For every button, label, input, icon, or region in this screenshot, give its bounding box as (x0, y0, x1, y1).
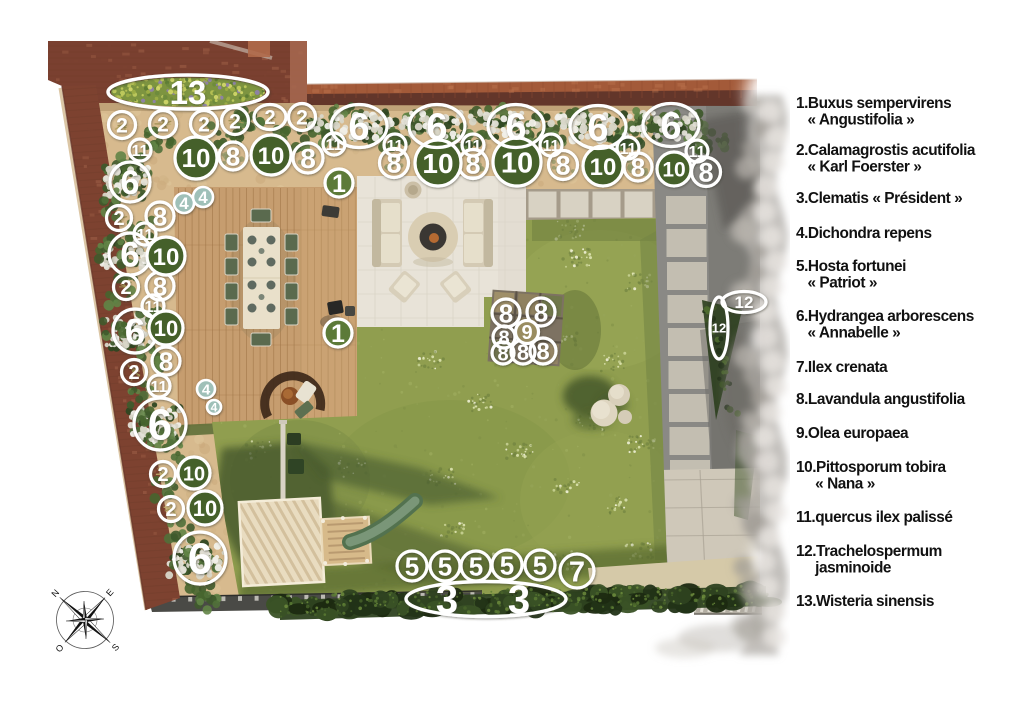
svg-text:10: 10 (258, 143, 285, 170)
svg-text:2: 2 (264, 107, 275, 129)
svg-text:1.Buxus sempervirens: 1.Buxus sempervirens (796, 95, 951, 112)
svg-text:jasminoide: jasminoide (796, 560, 892, 577)
svg-text:5: 5 (405, 551, 419, 581)
svg-text:10: 10 (182, 143, 211, 173)
svg-text:4: 4 (211, 400, 218, 414)
svg-text:« Patriot »: « Patriot » (796, 275, 877, 292)
svg-text:« Angustifolia »: « Angustifolia » (796, 112, 914, 129)
svg-text:8: 8 (698, 158, 713, 188)
svg-text:8: 8 (499, 298, 513, 328)
svg-text:8: 8 (555, 151, 570, 181)
svg-text:2: 2 (157, 464, 168, 486)
svg-text:1: 1 (332, 170, 346, 198)
svg-text:7: 7 (569, 556, 585, 588)
svg-text:8: 8 (386, 149, 401, 179)
svg-text:« Nana »: « Nana » (796, 476, 875, 493)
svg-text:8: 8 (159, 346, 173, 376)
svg-text:10.Pittosporum tobira: 10.Pittosporum tobira (796, 459, 946, 476)
svg-text:8: 8 (536, 339, 549, 366)
svg-text:2: 2 (120, 277, 131, 299)
svg-text:13: 13 (170, 74, 207, 111)
svg-text:6: 6 (125, 311, 146, 352)
svg-text:6: 6 (587, 108, 608, 150)
svg-text:12.Trachelospermum: 12.Trachelospermum (796, 543, 942, 560)
svg-text:6: 6 (348, 107, 369, 149)
svg-text:5: 5 (500, 550, 514, 580)
svg-text:7.Ilex crenata: 7.Ilex crenata (796, 359, 888, 376)
svg-text:5.Hosta fortunei: 5.Hosta fortunei (796, 258, 906, 275)
svg-text:10: 10 (183, 463, 205, 485)
svg-text:2: 2 (198, 114, 210, 137)
svg-text:4: 4 (179, 194, 189, 213)
svg-text:11: 11 (151, 379, 168, 396)
svg-text:6: 6 (148, 401, 172, 450)
svg-text:2: 2 (157, 114, 169, 137)
svg-text:12: 12 (712, 321, 726, 336)
svg-text:2: 2 (229, 111, 241, 134)
svg-text:3.Clematis « Président »: 3.Clematis « Président » (796, 190, 962, 207)
svg-text:2: 2 (128, 362, 139, 384)
svg-text:2: 2 (113, 208, 124, 230)
svg-text:« Karl Foerster »: « Karl Foerster » (796, 159, 921, 176)
svg-text:10: 10 (501, 148, 533, 180)
svg-text:2.Calamagrostis acutifolia: 2.Calamagrostis acutifolia (796, 142, 976, 159)
svg-text:11: 11 (137, 227, 154, 244)
svg-text:10: 10 (153, 244, 180, 271)
svg-text:9.Olea europaea: 9.Olea europaea (796, 425, 909, 442)
svg-text:8: 8 (465, 150, 480, 180)
svg-text:10: 10 (422, 148, 453, 179)
svg-text:6: 6 (660, 106, 681, 148)
svg-text:« Annabelle »: « Annabelle » (796, 325, 900, 342)
svg-text:5: 5 (438, 551, 452, 581)
svg-text:1: 1 (331, 320, 345, 348)
svg-text:10: 10 (662, 158, 685, 181)
svg-text:13.Wisteria sinensis: 13.Wisteria sinensis (796, 593, 934, 610)
svg-text:8: 8 (631, 152, 645, 182)
svg-text:9: 9 (521, 322, 532, 344)
svg-text:3: 3 (508, 578, 530, 622)
svg-text:2: 2 (165, 499, 176, 521)
svg-text:5: 5 (469, 551, 483, 581)
svg-text:11: 11 (132, 143, 149, 160)
svg-text:8.Lavandula angustifolia: 8.Lavandula angustifolia (796, 391, 966, 408)
svg-text:2: 2 (116, 115, 128, 138)
svg-text:10: 10 (193, 496, 217, 521)
svg-text:8: 8 (300, 143, 316, 174)
svg-text:6: 6 (505, 107, 526, 149)
svg-text:8: 8 (497, 343, 508, 365)
svg-text:11: 11 (326, 137, 343, 154)
svg-text:10: 10 (590, 154, 617, 181)
svg-text:5: 5 (533, 550, 547, 580)
svg-text:11.quercus ilex palissé: 11.quercus ilex palissé (796, 509, 953, 526)
svg-text:10: 10 (154, 316, 178, 341)
svg-text:6: 6 (426, 107, 447, 149)
svg-text:3: 3 (436, 578, 458, 622)
svg-text:2: 2 (296, 107, 308, 130)
svg-text:6.Hydrangea arborescens: 6.Hydrangea arborescens (796, 308, 974, 325)
svg-text:8: 8 (226, 141, 240, 171)
svg-text:4: 4 (198, 188, 208, 207)
svg-text:6: 6 (188, 535, 212, 584)
svg-text:4.Dichondra repens: 4.Dichondra repens (796, 225, 932, 242)
svg-text:12: 12 (735, 293, 754, 312)
svg-text:6: 6 (121, 164, 140, 202)
svg-text:4: 4 (202, 382, 211, 399)
